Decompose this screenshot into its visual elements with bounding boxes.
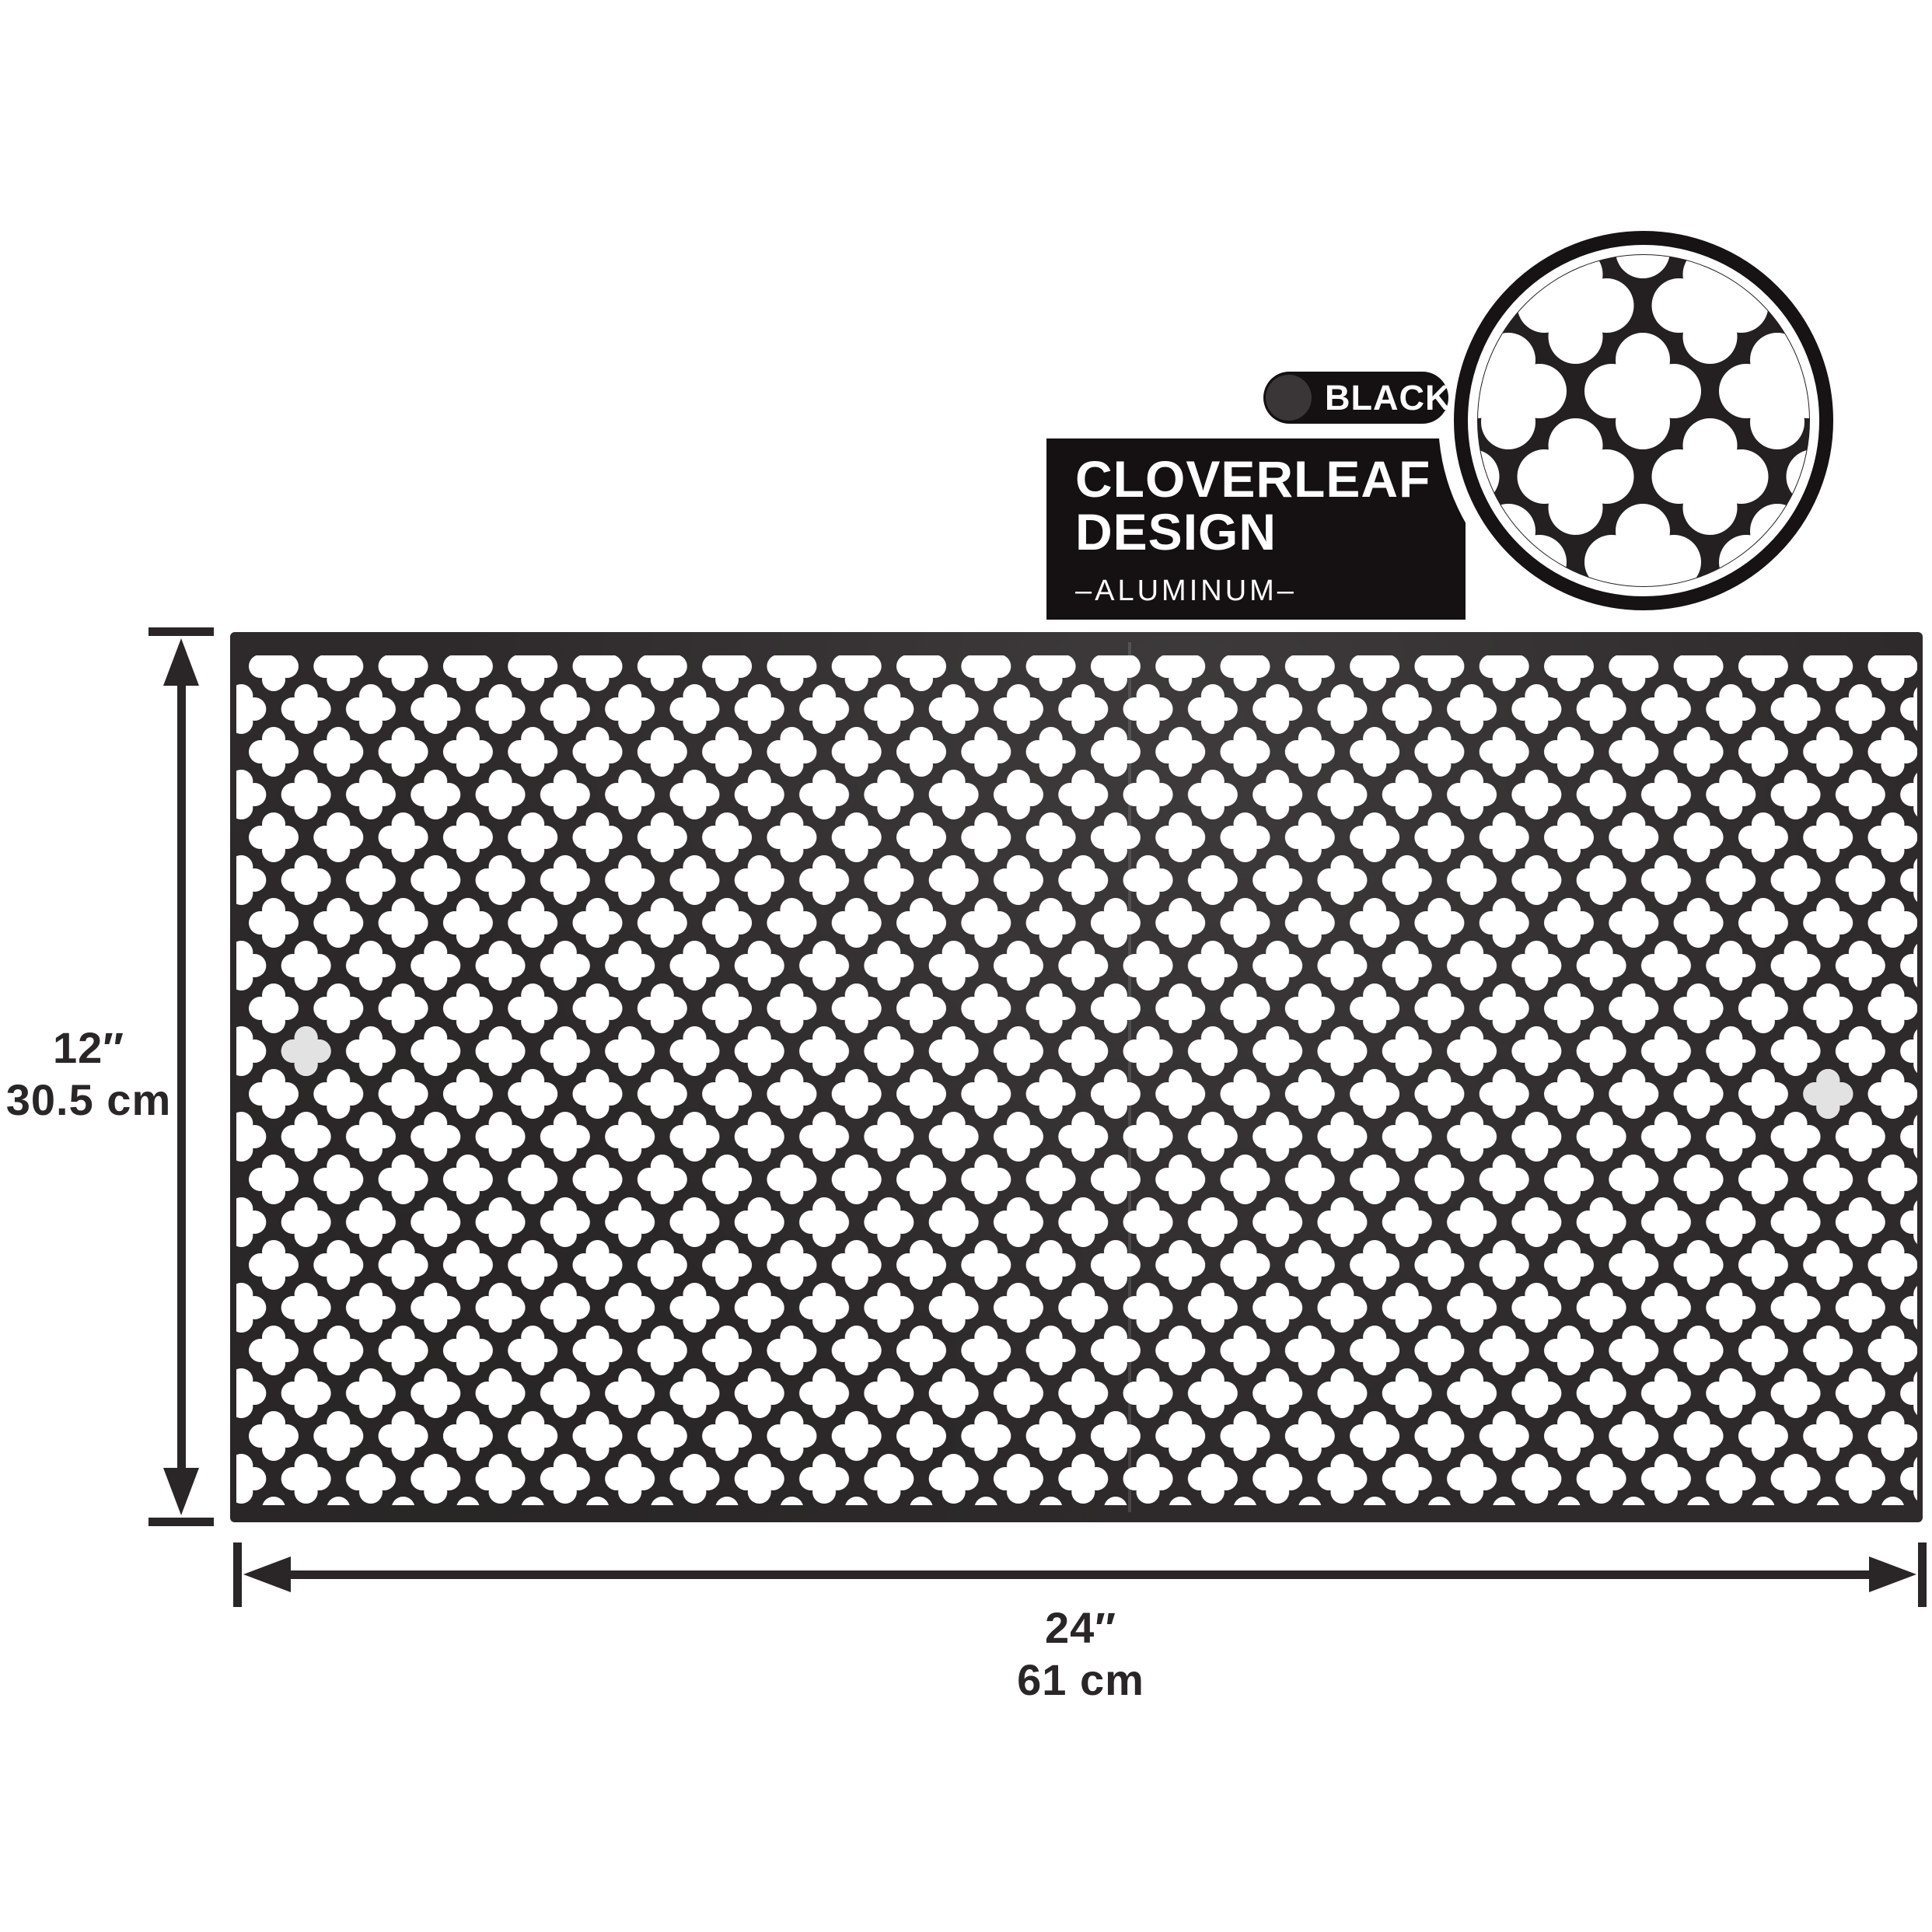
height-centimeters: 30.5 cm bbox=[0, 1074, 177, 1126]
color-badge-label: BLACK bbox=[1325, 378, 1451, 418]
dim-arrow-left bbox=[243, 1556, 291, 1592]
sheet-perforation-pattern bbox=[236, 655, 1917, 1505]
width-centimeters: 61 cm bbox=[886, 1654, 1275, 1706]
color-badge: BLACK bbox=[1263, 372, 1448, 424]
dim-tick-left bbox=[233, 1542, 242, 1607]
height-inches: 12″ bbox=[0, 1022, 177, 1074]
dim-tick-right bbox=[1918, 1542, 1927, 1607]
dim-line-vertical bbox=[177, 673, 186, 1483]
dim-tick-bottom bbox=[148, 1518, 214, 1526]
color-swatch-icon bbox=[1266, 375, 1312, 421]
perforated-sheet bbox=[230, 632, 1923, 1522]
material-label: –ALUMINUM– bbox=[1075, 575, 1466, 608]
height-dimension-label: 12″ 30.5 cm bbox=[0, 1022, 177, 1126]
design-title-line2: DESIGN bbox=[1075, 505, 1466, 558]
product-spec-image: { "product": { "color_label": "BLACK", "… bbox=[0, 0, 1932, 1932]
magnified-cloverleaf-pattern bbox=[1476, 253, 1811, 588]
pattern-detail-circle bbox=[1438, 215, 1849, 626]
dim-tick-top bbox=[148, 627, 214, 636]
dim-arrow-up bbox=[163, 638, 199, 686]
spec-label-text: CLOVERLEAF DESIGN –ALUMINUM– bbox=[1046, 438, 1466, 620]
horizontal-dimension bbox=[233, 1542, 1927, 1607]
dim-arrow-right bbox=[1869, 1556, 1916, 1592]
dim-arrow-down bbox=[163, 1468, 199, 1515]
design-title-line1: CLOVERLEAF bbox=[1075, 452, 1466, 505]
width-dimension-label: 24″ 61 cm bbox=[886, 1602, 1275, 1706]
width-inches: 24″ bbox=[886, 1602, 1275, 1654]
dim-line-horizontal bbox=[284, 1570, 1878, 1579]
